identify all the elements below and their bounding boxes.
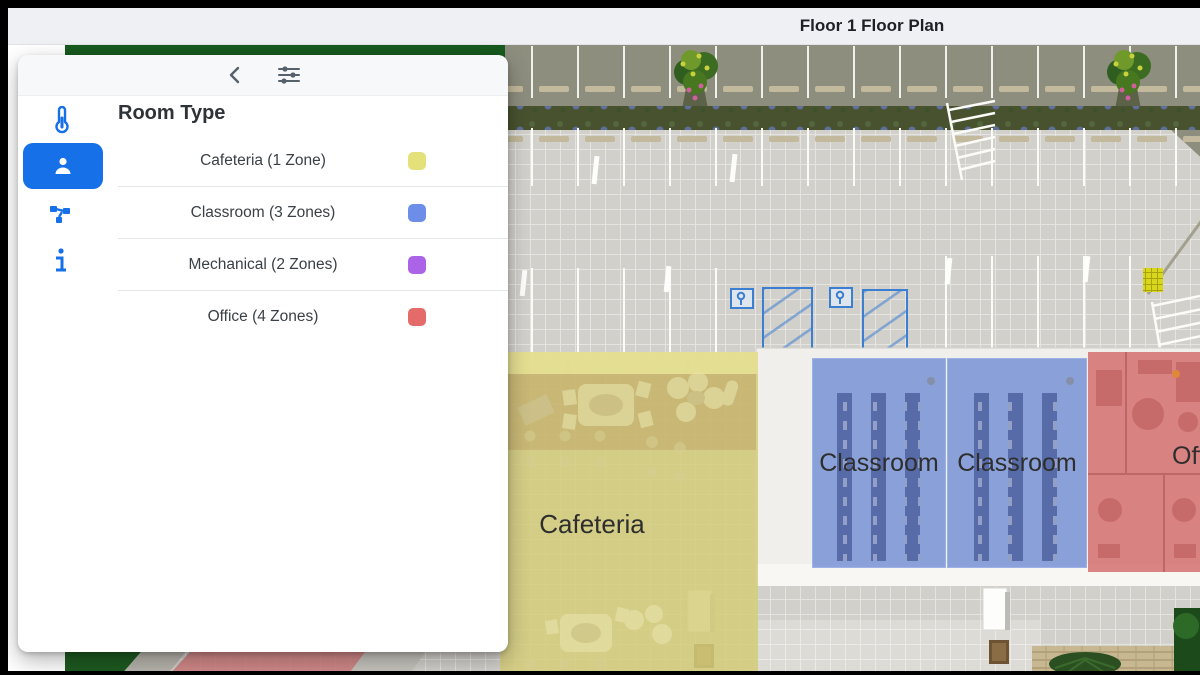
- parking-sign-icon: [731, 289, 753, 308]
- chevron-left-icon: [225, 65, 245, 85]
- legend-row-classroom[interactable]: Classroom (3 Zones): [118, 187, 508, 239]
- office-label: Office: [1172, 442, 1200, 471]
- sliders-icon: [277, 64, 301, 86]
- legend-label: Office (4 Zones): [118, 308, 408, 326]
- parking-stalls-upper: [485, 128, 1200, 186]
- panel-header: [18, 55, 508, 96]
- thermometer-icon: [51, 106, 71, 134]
- parking-sign-icon: [830, 288, 852, 307]
- color-swatch: [408, 256, 426, 274]
- collapse-panel-button[interactable]: [223, 63, 247, 87]
- room-type-legend: Cafeteria (1 Zone) Classroom (3 Zones) M…: [118, 135, 508, 342]
- cafeteria-label: Cafeteria: [500, 509, 684, 540]
- hedge-strip: [505, 106, 1200, 130]
- legend-label: Classroom (3 Zones): [118, 204, 408, 222]
- temperature-layer-button[interactable]: [51, 106, 71, 137]
- layers-panel: Room Type Cafeteria (1 Zone) Classroom (…: [18, 55, 508, 652]
- color-swatch: [408, 204, 426, 222]
- title-bar: Floor 1 Floor Plan: [8, 8, 1200, 45]
- legend-label: Mechanical (2 Zones): [118, 256, 408, 274]
- occupancy-layer-button[interactable]: [23, 143, 103, 189]
- legend-row-office[interactable]: Office (4 Zones): [118, 291, 508, 342]
- zone-office[interactable]: Office: [1088, 352, 1200, 572]
- zone-marker-dot: [1066, 377, 1074, 385]
- zone-classroom-2[interactable]: Classroom: [947, 358, 1087, 568]
- share-nodes-icon: [48, 203, 74, 227]
- color-swatch: [408, 152, 426, 170]
- zone-classroom-1[interactable]: Classroom: [812, 358, 946, 568]
- classroom-label: Classroom: [948, 449, 1086, 478]
- layer-icon-rail: [18, 96, 118, 652]
- person-icon: [52, 155, 74, 177]
- legend-row-mechanical[interactable]: Mechanical (2 Zones): [118, 239, 508, 291]
- info-layer-button[interactable]: [54, 248, 68, 277]
- zone-marker-dot: [1172, 370, 1180, 378]
- zone-marker-dot: [927, 377, 935, 385]
- legend-row-cafeteria[interactable]: Cafeteria (1 Zone): [118, 135, 508, 187]
- panel-body: Room Type Cafeteria (1 Zone) Classroom (…: [18, 96, 508, 652]
- info-icon: [54, 248, 68, 274]
- page-title: Floor 1 Floor Plan: [800, 16, 945, 36]
- network-layer-button[interactable]: [48, 203, 74, 230]
- filter-settings-button[interactable]: [275, 62, 303, 88]
- classroom-label: Classroom: [813, 449, 945, 478]
- legend-label: Cafeteria (1 Zone): [118, 152, 408, 170]
- zone-cafeteria[interactable]: Cafeteria: [500, 352, 758, 671]
- legend-content: Room Type Cafeteria (1 Zone) Classroom (…: [118, 96, 508, 652]
- app-window: Cafeteria Classroom: [8, 8, 1200, 671]
- panel-title: Room Type: [118, 96, 508, 125]
- color-swatch: [408, 308, 426, 326]
